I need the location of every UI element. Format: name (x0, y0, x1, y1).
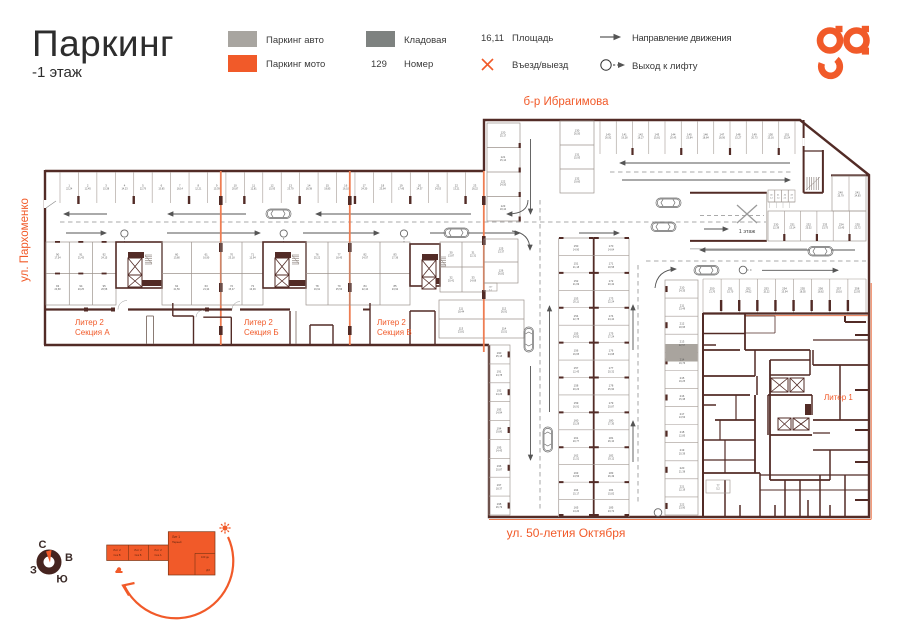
svg-text:13,85: 13,85 (158, 188, 165, 191)
svg-text:21,18: 21,18 (573, 266, 580, 269)
svg-text:18,45: 18,45 (336, 257, 343, 260)
svg-text:ДЗ: ДЗ (206, 568, 210, 572)
svg-text:14,90: 14,90 (573, 248, 580, 251)
svg-text:23,64: 23,64 (380, 188, 387, 191)
svg-text:24,62: 24,62 (745, 291, 752, 294)
svg-text:19,80: 19,80 (496, 431, 503, 434)
svg-text:Литер 2: Литер 2 (377, 318, 406, 327)
svg-text:23,90: 23,90 (679, 507, 686, 510)
svg-text:26,82: 26,82 (498, 273, 505, 276)
svg-text:21,51: 21,51 (573, 458, 580, 461)
svg-text:17,54: 17,54 (55, 257, 62, 260)
svg-text:Сек Б: Сек Б (135, 553, 142, 557)
svg-text:21,43: 21,43 (78, 257, 85, 260)
svg-text:12,85: 12,85 (679, 434, 686, 437)
svg-text:Кладовая: Кладовая (404, 35, 447, 46)
svg-text:Парный: Парный (172, 540, 182, 544)
svg-text:26,79: 26,79 (496, 506, 503, 509)
svg-text:23,79: 23,79 (287, 188, 294, 191)
svg-text:14,94: 14,94 (496, 412, 503, 415)
svg-text:15,22: 15,22 (763, 291, 770, 294)
svg-text:26,10: 26,10 (608, 440, 615, 443)
svg-text:17,30: 17,30 (608, 423, 615, 426)
svg-text:20,41: 20,41 (448, 280, 455, 283)
svg-text:15,47: 15,47 (228, 288, 235, 291)
svg-text:24,44: 24,44 (608, 318, 615, 321)
svg-text:Выход к лифту: Выход к лифту (632, 61, 698, 72)
svg-text:Ю: Ю (56, 574, 67, 586)
svg-text:16,91: 16,91 (573, 405, 580, 408)
svg-text:14,83: 14,83 (854, 195, 861, 198)
svg-text:25,90: 25,90 (608, 388, 615, 391)
svg-text:12,39: 12,39 (773, 227, 780, 230)
svg-text:Секция Б: Секция Б (244, 328, 279, 337)
svg-text:15,82: 15,82 (608, 492, 615, 495)
svg-text:20,87: 20,87 (232, 188, 239, 191)
svg-text:13,39: 13,39 (249, 288, 256, 291)
svg-text:20,87: 20,87 (608, 405, 615, 408)
svg-text:25,52: 25,52 (806, 227, 813, 230)
svg-text:13,80: 13,80 (174, 257, 181, 260)
svg-text:24,78: 24,78 (496, 374, 503, 377)
svg-text:19,12: 19,12 (608, 458, 615, 461)
svg-text:12,19: 12,19 (679, 488, 686, 491)
svg-text:20,23: 20,23 (573, 388, 580, 391)
svg-text:22,79: 22,79 (140, 188, 147, 191)
svg-text:24,53: 24,53 (435, 188, 442, 191)
svg-text:20,73: 20,73 (751, 137, 758, 140)
svg-text:25,18: 25,18 (496, 355, 503, 358)
svg-text:14,68: 14,68 (608, 353, 615, 356)
svg-text:-1 этаж: -1 этаж (32, 64, 82, 81)
svg-text:Площадь: Площадь (512, 33, 553, 44)
svg-text:20,87: 20,87 (496, 468, 503, 471)
svg-text:22,72: 22,72 (854, 227, 861, 230)
svg-text:26,92: 26,92 (605, 137, 612, 140)
svg-text:Паркинг: Паркинг (32, 23, 174, 64)
svg-text:15,17: 15,17 (573, 492, 580, 495)
svg-text:20,32: 20,32 (608, 370, 615, 373)
svg-text:22,24: 22,24 (66, 188, 73, 191)
svg-text:26,49: 26,49 (608, 475, 615, 478)
svg-text:20,25: 20,25 (78, 288, 85, 291)
svg-text:24,50: 24,50 (500, 184, 507, 187)
svg-text:26,91: 26,91 (501, 311, 508, 314)
svg-text:С: С (39, 539, 47, 551)
svg-text:15,38: 15,38 (103, 188, 110, 191)
svg-text:ул. Пархоменко: ул. Пархоменко (19, 198, 31, 282)
svg-text:15,51: 15,51 (501, 331, 508, 334)
svg-text:14,43: 14,43 (496, 449, 503, 452)
svg-text:12,81: 12,81 (250, 188, 257, 191)
svg-text:Направление движения: Направление движения (632, 33, 731, 44)
svg-text:20,77: 20,77 (573, 440, 580, 443)
svg-text:18,95: 18,95 (679, 326, 686, 329)
svg-text:20,39: 20,39 (679, 452, 686, 455)
svg-text:Сек А: Сек А (155, 553, 162, 557)
svg-text:14,57: 14,57 (362, 257, 369, 260)
svg-text:22,57: 22,57 (679, 344, 686, 347)
svg-text:Литер 2: Литер 2 (244, 318, 273, 327)
svg-text:19,60: 19,60 (574, 181, 581, 184)
svg-text:Лит 2: Лит 2 (154, 548, 162, 552)
svg-text:19,16: 19,16 (836, 291, 843, 294)
svg-text:21,56: 21,56 (174, 288, 181, 291)
svg-text:13,53: 13,53 (679, 416, 686, 419)
svg-text:18,58: 18,58 (608, 266, 615, 269)
svg-text:19,25: 19,25 (679, 380, 686, 383)
svg-text:20,43: 20,43 (670, 137, 677, 140)
svg-text:19,76: 19,76 (679, 362, 686, 365)
svg-text:24,30: 24,30 (361, 188, 368, 191)
svg-text:2,4: 2,4 (784, 198, 786, 200)
svg-text:20,42: 20,42 (608, 283, 615, 286)
svg-text:14,69: 14,69 (470, 280, 477, 283)
svg-text:14,64: 14,64 (608, 248, 615, 251)
svg-text:13,14: 13,14 (789, 227, 796, 230)
svg-text:18,14: 18,14 (177, 188, 184, 191)
svg-text:23,18: 23,18 (228, 257, 235, 260)
svg-text:13,87: 13,87 (448, 255, 455, 258)
svg-text:24,26: 24,26 (496, 393, 503, 396)
svg-text:19,85: 19,85 (324, 188, 331, 191)
svg-text:23,49: 23,49 (679, 308, 686, 311)
svg-text:13,20: 13,20 (573, 510, 580, 513)
svg-text:12,94: 12,94 (249, 257, 256, 260)
svg-text:Литер 1: Литер 1 (824, 393, 853, 402)
svg-text:100 дн: 100 дн (201, 555, 210, 559)
svg-text:18,84: 18,84 (703, 137, 710, 140)
svg-text:18,44: 18,44 (458, 311, 465, 314)
svg-text:Секция А: Секция А (75, 328, 110, 337)
svg-text:12,21: 12,21 (195, 188, 202, 191)
svg-text:17,36: 17,36 (392, 257, 399, 260)
svg-text:14,37: 14,37 (416, 188, 423, 191)
svg-text:21,34: 21,34 (203, 288, 210, 291)
svg-text:12,43: 12,43 (573, 370, 580, 373)
svg-text:18,56: 18,56 (719, 137, 726, 140)
svg-text:15,14: 15,14 (500, 159, 507, 162)
svg-text:18,38: 18,38 (306, 188, 313, 191)
svg-text:25,22: 25,22 (314, 257, 321, 260)
svg-text:13,21: 13,21 (453, 188, 460, 191)
svg-text:Литер 2: Литер 2 (75, 318, 104, 327)
svg-text:23,92: 23,92 (392, 288, 399, 291)
svg-text:2,4: 2,4 (790, 198, 792, 200)
svg-text:26,58: 26,58 (101, 288, 108, 291)
svg-text:Лит 2: Лит 2 (134, 548, 142, 552)
svg-text:15,29: 15,29 (573, 423, 580, 426)
svg-text:Въезд/выезд: Въезд/выезд (512, 60, 569, 71)
svg-text:22,93: 22,93 (854, 291, 861, 294)
svg-text:25,17: 25,17 (500, 135, 507, 138)
svg-text:Номер: Номер (404, 59, 433, 70)
svg-text:23,81: 23,81 (458, 331, 465, 334)
svg-text:б-р Ибрагимова: б-р Ибрагимова (524, 96, 610, 108)
svg-text:129: 129 (371, 59, 387, 70)
svg-text:2,4: 2,4 (770, 198, 772, 200)
svg-text:15,45: 15,45 (838, 227, 845, 230)
svg-text:24,92: 24,92 (573, 336, 580, 339)
svg-text:Лит 2: Лит 2 (113, 548, 121, 552)
svg-text:ул. 50-летия Октября: ул. 50-летия Октября (507, 526, 626, 540)
svg-text:16,27: 16,27 (638, 137, 645, 140)
svg-text:12,45: 12,45 (85, 188, 92, 191)
svg-text:16,11: 16,11 (481, 33, 504, 44)
svg-text:25,56: 25,56 (336, 288, 343, 291)
svg-text:17,45: 17,45 (398, 188, 405, 191)
svg-text:18,22: 18,22 (472, 188, 479, 191)
svg-text:Паркинг авто: Паркинг авто (266, 35, 324, 46)
svg-text:23,84: 23,84 (686, 137, 693, 140)
svg-text:15,39: 15,39 (214, 188, 221, 191)
svg-text:19,28: 19,28 (621, 137, 628, 140)
svg-text:18,37: 18,37 (496, 487, 503, 490)
svg-text:15,93: 15,93 (574, 157, 581, 160)
svg-text:25,24: 25,24 (784, 137, 791, 140)
svg-text:20,11: 20,11 (573, 301, 580, 304)
svg-text:21,38: 21,38 (679, 470, 686, 473)
svg-text:15,70: 15,70 (727, 291, 734, 294)
svg-text:15,81: 15,81 (654, 137, 661, 140)
svg-text:В: В (65, 552, 73, 564)
svg-text:22,78: 22,78 (573, 318, 580, 321)
svg-text:24,35: 24,35 (679, 290, 686, 293)
svg-text:15,38: 15,38 (679, 398, 686, 401)
svg-text:Паркинг мото: Паркинг мото (266, 59, 325, 70)
svg-text:13,94: 13,94 (781, 291, 788, 294)
svg-text:Лит 1: Лит 1 (172, 535, 180, 539)
svg-text:26,50: 26,50 (574, 133, 581, 136)
svg-text:18,55: 18,55 (800, 291, 807, 294)
svg-text:1 этаж: 1 этаж (739, 229, 756, 235)
svg-text:22,44: 22,44 (362, 288, 369, 291)
svg-text:Секция В: Секция В (377, 328, 412, 337)
svg-text:З: З (30, 565, 37, 577)
svg-text:19,91: 19,91 (314, 288, 321, 291)
svg-text:22,31: 22,31 (470, 255, 477, 258)
svg-text:15,27: 15,27 (735, 137, 742, 140)
svg-text:21,70: 21,70 (709, 291, 716, 294)
svg-text:13,16: 13,16 (768, 137, 775, 140)
svg-text:18,44: 18,44 (500, 208, 507, 211)
svg-text:3,1: 3,1 (489, 290, 492, 292)
svg-text:21,69: 21,69 (573, 283, 580, 286)
svg-text:13,56: 13,56 (573, 475, 580, 478)
svg-text:24,15: 24,15 (101, 257, 108, 260)
svg-text:16,10: 16,10 (343, 188, 350, 191)
svg-text:Сек В: Сек В (114, 553, 121, 557)
svg-text:16,90: 16,90 (203, 257, 210, 260)
svg-text:13,75: 13,75 (822, 227, 829, 230)
svg-text:16,65: 16,65 (573, 353, 580, 356)
svg-text:23,72: 23,72 (608, 510, 615, 513)
svg-text:15,93: 15,93 (269, 188, 276, 191)
svg-text:13,37: 13,37 (498, 251, 505, 254)
svg-text:14,23: 14,23 (121, 188, 128, 191)
svg-text:17,24: 17,24 (608, 336, 615, 339)
svg-text:22,24: 22,24 (608, 301, 615, 304)
svg-text:2,4: 2,4 (777, 198, 779, 200)
svg-text:23,68: 23,68 (55, 288, 62, 291)
svg-text:15,79: 15,79 (837, 195, 844, 198)
svg-text:18,62: 18,62 (818, 291, 825, 294)
